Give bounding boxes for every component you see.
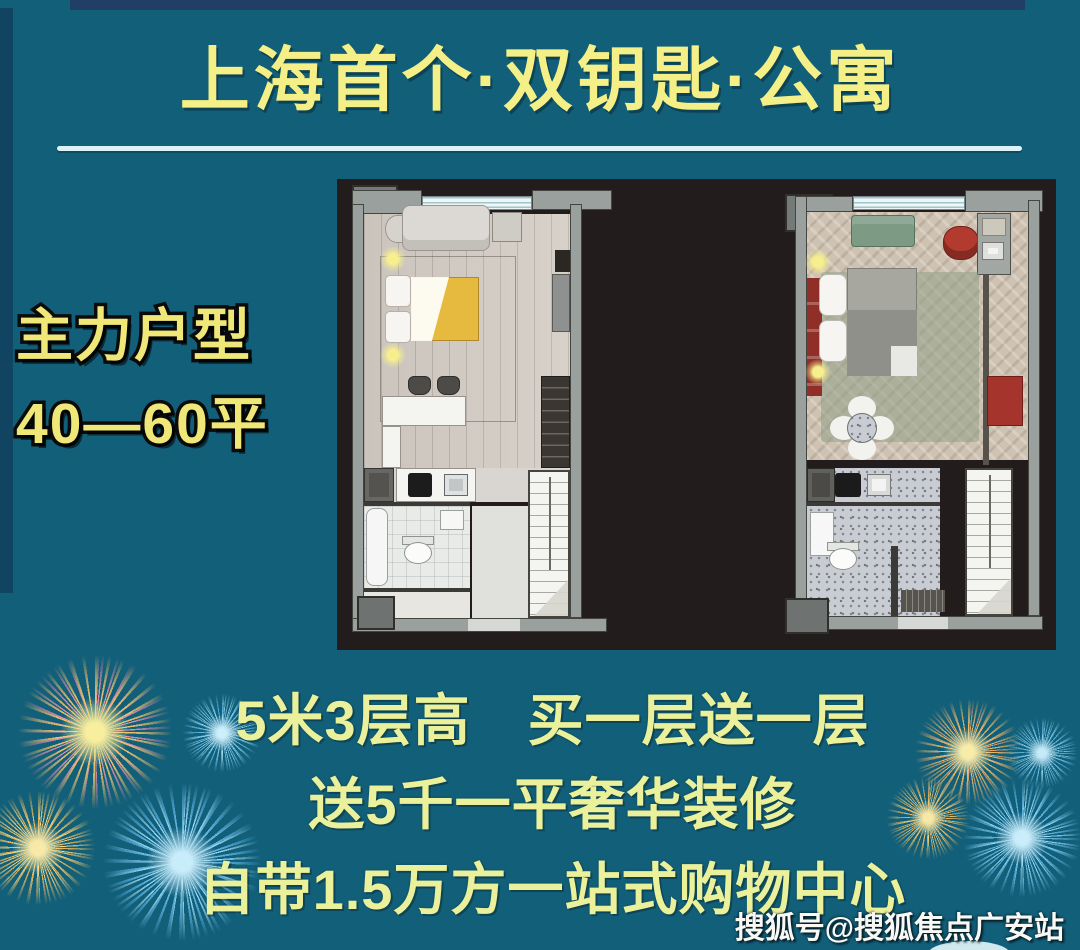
utility-block: [357, 596, 395, 630]
bathroom-sink: [440, 510, 464, 530]
desk-return: [382, 426, 401, 468]
lamp: [805, 359, 831, 385]
green-sofa: [851, 215, 915, 247]
poster-title: 上海首个·双钥匙·公寓: [0, 24, 1080, 125]
kitchen-sink: [867, 474, 891, 496]
lamp: [805, 249, 831, 275]
selling-point-1: 5米3层高 买一层送一层: [25, 676, 1080, 757]
wall: [570, 204, 582, 618]
lamp: [380, 342, 406, 368]
wardrobe: [541, 376, 570, 468]
unit-type-line2: 40—60平: [16, 380, 269, 468]
tv-console: [552, 274, 570, 332]
unit-type-text: 主力户型 40—60平: [16, 292, 269, 468]
wall: [1028, 200, 1040, 616]
unit-type-line1: 主力户型: [16, 292, 269, 380]
desk: [382, 396, 466, 426]
table-top: [847, 413, 877, 443]
appliance: [982, 242, 1004, 260]
red-armchair: [943, 226, 979, 260]
staircase: [528, 470, 570, 618]
pillow: [819, 320, 847, 362]
interior-wall: [891, 546, 898, 616]
floor-plan-left: [352, 190, 582, 640]
poster-background: 上海首个·双钥匙·公寓 主力户型 40—60平: [0, 0, 1080, 950]
lamp: [380, 246, 406, 272]
floor-plan-right: [795, 190, 1040, 640]
flower-table: [830, 396, 894, 460]
appliance: [982, 218, 1006, 236]
pillow: [819, 274, 847, 316]
cooktop: [835, 473, 861, 497]
sofa: [402, 205, 490, 251]
selling-point-2: 送5千一平奢华装修: [25, 760, 1080, 841]
top-border-strip: [70, 0, 1025, 10]
red-cabinet: [987, 376, 1023, 426]
pillow: [385, 275, 411, 307]
toilet: [404, 542, 432, 564]
kitchen-sink: [444, 474, 468, 496]
bathtub: [366, 508, 388, 586]
appliance-stack: [364, 468, 394, 502]
cooktop: [408, 473, 432, 497]
appliance-stack: [807, 468, 835, 502]
utility-block: [785, 598, 829, 634]
entry-door: [898, 617, 948, 629]
floor-plan-panel: [337, 179, 1056, 650]
window: [853, 196, 965, 210]
stool: [437, 376, 460, 395]
bed-throw: [891, 346, 917, 376]
tv: [555, 250, 570, 272]
toilet: [829, 548, 857, 570]
pillow: [385, 311, 411, 343]
side-table: [492, 212, 522, 242]
entry-door: [468, 619, 520, 631]
shoe-cabinet: [901, 590, 945, 612]
interior-wall: [983, 275, 989, 465]
hallway-floor: [472, 506, 528, 618]
watermark: 搜狐号@搜狐焦点广安站: [735, 903, 1064, 947]
stool: [408, 376, 431, 395]
staircase: [965, 468, 1013, 616]
wall: [352, 204, 364, 628]
title-underline: [57, 146, 1022, 151]
